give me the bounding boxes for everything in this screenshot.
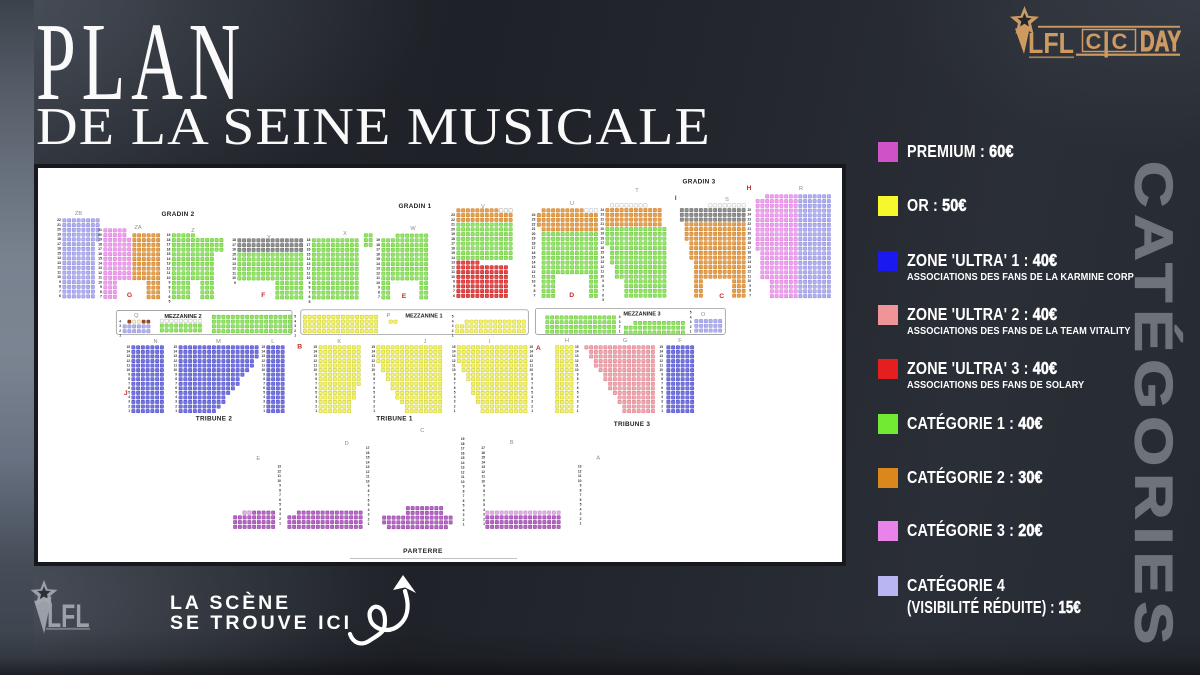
svg-text:K: K [337, 339, 341, 345]
svg-text:MEZZANINE 1: MEZZANINE 1 [405, 314, 442, 320]
svg-text:I: I [675, 195, 677, 202]
svg-text:Y: Y [267, 235, 271, 241]
svg-text:242322212019181716151413121110: 24232221201918171615141312111098765 [600, 208, 604, 302]
svg-text:18171615141312111098765: 18171615141312111098765 [307, 238, 311, 304]
svg-text:G: G [127, 292, 132, 299]
svg-text:TRIBUNE 1: TRIBUNE 1 [376, 416, 413, 423]
svg-text:54321: 54321 [690, 311, 692, 334]
svg-text:V: V [481, 204, 485, 210]
svg-text:13121110987654321: 13121110987654321 [277, 465, 281, 526]
svg-text:R: R [799, 186, 803, 192]
svg-text:D: D [569, 292, 574, 299]
svg-text:MEZZANINE 3: MEZZANINE 3 [623, 312, 660, 318]
svg-text:S: S [725, 197, 729, 203]
svg-text:151413121110987654321: 151413121110987654321 [261, 345, 265, 413]
svg-text:1817161514131211109: 1817161514131211109 [232, 238, 236, 285]
svg-text:222120191817161514131211109876: 222120191817161514131211109876 [57, 218, 61, 298]
svg-text:TRIBUNE 2: TRIBUNE 2 [196, 416, 233, 423]
svg-text:C: C [420, 428, 424, 434]
svg-text:Q: Q [134, 313, 139, 319]
svg-text:C: C [1112, 29, 1128, 54]
svg-text:C: C [1086, 29, 1102, 54]
svg-text:W: W [410, 226, 416, 232]
svg-text:151413121110987654321: 151413121110987654321 [173, 345, 177, 413]
svg-text:GRADIN 2: GRADIN 2 [162, 211, 195, 218]
svg-text:54321: 54321 [452, 315, 454, 338]
svg-text:GRADIN 3: GRADIN 3 [683, 179, 716, 186]
svg-text:19181716151413121110987: 19181716151413121110987 [376, 238, 380, 299]
svg-text:P: P [387, 313, 391, 319]
svg-text:151413121110987654321: 151413121110987654321 [313, 345, 317, 413]
svg-text:F: F [678, 338, 682, 344]
svg-text:1716151413121110987654321: 1716151413121110987654321 [366, 446, 370, 526]
svg-text:Z: Z [191, 228, 195, 234]
svg-text:L: L [271, 339, 274, 345]
svg-text:151413121110987654321: 151413121110987654321 [452, 345, 456, 413]
svg-text:1918171615141312111098765: 1918171615141312111098765 [167, 233, 171, 304]
svg-text:B: B [510, 440, 514, 446]
svg-text:C: C [719, 293, 724, 300]
svg-text:151413121110987654321: 151413121110987654321 [659, 345, 663, 413]
svg-text:4321: 4321 [619, 315, 621, 333]
svg-text:242322212019181716151413121110: 242322212019181716151413121110987 [532, 213, 536, 298]
svg-text:252423222120191817161514131211: 25242322212019181716151413121110987 [747, 208, 751, 298]
svg-text:E: E [256, 456, 260, 462]
svg-text:PARTERRE: PARTERRE [403, 548, 443, 555]
svg-text:U: U [570, 201, 574, 207]
svg-text:GRADIN 1: GRADIN 1 [399, 203, 432, 210]
svg-text:DAY: DAY [1140, 26, 1181, 58]
svg-text:LFL: LFL [1028, 28, 1074, 60]
svg-text:212019181716151413121110987: 212019181716151413121110987 [98, 228, 102, 299]
svg-text:H: H [565, 338, 569, 344]
svg-text:E: E [402, 293, 407, 300]
svg-text:TRIBUNE 3: TRIBUNE 3 [614, 421, 651, 428]
svg-text:54321: 54321 [294, 315, 296, 338]
svg-text:ZB: ZB [75, 211, 82, 217]
svg-text:D: D [345, 441, 349, 447]
svg-text:M: M [216, 339, 221, 345]
svg-text:T: T [635, 188, 639, 194]
svg-text:151413121110987654321: 151413121110987654321 [371, 345, 375, 413]
svg-text:O: O [701, 312, 706, 318]
svg-text:151413121110987654321: 151413121110987654321 [529, 345, 533, 413]
svg-text:151413121110987654321: 151413121110987654321 [575, 345, 579, 413]
svg-text:G: G [623, 338, 627, 344]
svg-text:A: A [596, 456, 600, 462]
svg-text:A: A [536, 345, 541, 352]
svg-text:ZA: ZA [134, 225, 141, 231]
svg-text:F: F [261, 292, 265, 299]
svg-text:X: X [343, 231, 347, 237]
svg-text:B: B [297, 344, 302, 351]
svg-text:N: N [153, 339, 157, 345]
svg-text:19181716151413121110987654321: 19181716151413121110987654321 [461, 437, 465, 526]
svg-text:151413121110987654321: 151413121110987654321 [126, 345, 130, 413]
svg-text:232221201918171615141312111098: 23222120191817161514131211109876 [451, 213, 455, 298]
svg-text:J: J [424, 339, 427, 345]
svg-text:4321: 4321 [119, 319, 121, 337]
svg-text:13121110987654321: 13121110987654321 [578, 465, 582, 526]
svg-text:I: I [489, 339, 491, 345]
svg-text:H: H [747, 185, 752, 192]
svg-text:1716151413121110987654321: 1716151413121110987654321 [481, 446, 485, 526]
